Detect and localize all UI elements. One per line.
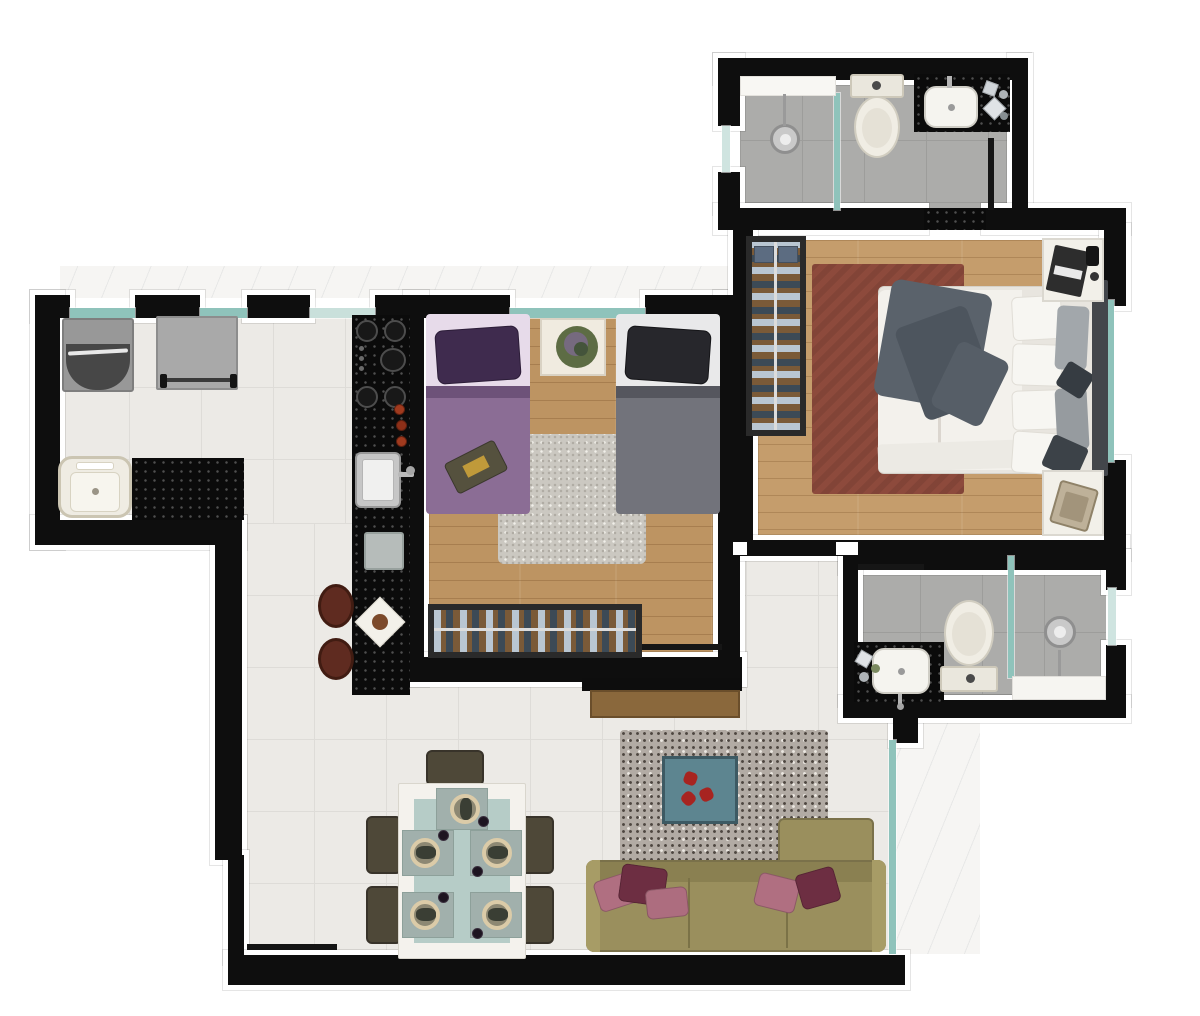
- wine-glass: [438, 830, 449, 841]
- bath-accessory: [999, 90, 1008, 99]
- plate-food: [488, 846, 508, 859]
- sink-drain: [948, 104, 955, 111]
- door-leaf-entry: [247, 944, 337, 950]
- wardrobe-box: [754, 246, 774, 263]
- wall-laundry-bottom: [35, 520, 242, 545]
- bed-headboard: [1092, 280, 1108, 476]
- door-threshold-bath1: [924, 208, 986, 230]
- spice-bottle: [394, 404, 405, 415]
- wall-living-left-upper: [215, 520, 242, 860]
- door-leaf-bath1: [988, 138, 994, 210]
- wall-bath2-bottom: [843, 700, 1126, 718]
- apartment-floor-plan: [0, 0, 1200, 1016]
- wall-bath1-left-upper: [718, 58, 740, 126]
- stove-burner: [384, 320, 406, 342]
- bar-stool: [318, 638, 354, 680]
- window-glass-laundry: [70, 308, 135, 318]
- balcony-floor: [896, 716, 980, 954]
- single-bed-purple-fold: [426, 386, 530, 398]
- dining-chair: [366, 886, 402, 944]
- wall-living-left-lower: [228, 855, 244, 960]
- nightstand-plant-core: [574, 342, 588, 356]
- shower-glass-bath1: [834, 93, 840, 210]
- spice-bottle: [396, 436, 407, 447]
- laundry-sink-drain: [92, 488, 99, 495]
- wine-glass: [472, 928, 483, 939]
- wall-bath1-right: [1012, 58, 1028, 210]
- wardrobe-box: [778, 246, 798, 263]
- kitchen-sink-basin: [362, 459, 394, 501]
- sink-faucet-knob: [897, 703, 904, 710]
- nightstand-clock: [1090, 272, 1099, 281]
- shower-drain-center: [780, 134, 791, 145]
- sofa-armrest-right: [872, 860, 886, 952]
- master-wardrobe-rail: [774, 242, 777, 430]
- tv-console: [590, 690, 740, 718]
- wall-bedroom2-left: [408, 295, 424, 682]
- nightstand-phone: [1086, 246, 1099, 266]
- wall-bottom: [228, 955, 905, 985]
- shower-glass-bath2: [1008, 556, 1014, 678]
- laundry-sink-slot: [76, 462, 114, 470]
- toilet-button: [872, 81, 881, 90]
- single-bed-gray-fold: [616, 386, 720, 398]
- kitchen-faucet-base: [406, 466, 415, 475]
- bath-accessory: [1000, 112, 1008, 120]
- dining-chair: [366, 816, 402, 874]
- laundry-counter: [132, 458, 244, 520]
- wall-top-2: [135, 295, 200, 318]
- wine-glass: [438, 892, 449, 903]
- single-bed-purple-pillow: [434, 325, 522, 385]
- bath1-shelf: [740, 76, 836, 96]
- double-bed-foot-fold: [878, 439, 1023, 472]
- sofa-chaise-back: [778, 818, 874, 866]
- stove-burner: [356, 386, 378, 408]
- plate-food: [416, 846, 436, 859]
- wall-top-3: [247, 295, 310, 318]
- stove-burner: [380, 348, 406, 372]
- door-leaf-bath2: [858, 564, 924, 570]
- window-glass-bath1: [722, 126, 730, 172]
- ironing-board-foot-left: [160, 374, 167, 388]
- door-jamb-master-right: [836, 542, 858, 555]
- counter-decor-flower: [372, 614, 388, 630]
- stove-burner: [356, 320, 378, 342]
- door-leaf-bedroom2: [640, 644, 722, 650]
- wine-glass: [478, 816, 489, 827]
- shower-drain-center: [1054, 626, 1066, 638]
- toilet-button: [966, 674, 975, 683]
- wall-bath2-right-lower: [1106, 645, 1126, 702]
- bedroom2-wardrobe-rail: [434, 628, 636, 631]
- stove-knob: [359, 356, 364, 361]
- sink-faucet: [947, 76, 952, 88]
- stove-knob: [359, 366, 364, 371]
- spice-bottle: [396, 420, 407, 431]
- toilet-seat: [952, 612, 986, 656]
- sofa-cushion: [645, 886, 690, 920]
- wall-bath1-left-lower: [718, 172, 740, 210]
- toilet-seat: [862, 108, 892, 148]
- ironing-board-foot-right: [230, 374, 237, 388]
- window-glass-bath2: [1108, 588, 1116, 645]
- window-glass-living: [889, 740, 896, 954]
- wall-bath2-right-upper: [1106, 554, 1126, 590]
- sofa-armrest-left: [586, 860, 600, 952]
- stove-knob: [359, 346, 364, 351]
- bath2-bench: [1012, 676, 1106, 700]
- plate-food: [460, 798, 472, 820]
- cutting-board: [364, 532, 404, 570]
- bar-stool: [318, 584, 354, 628]
- bath-accessory: [859, 672, 869, 682]
- bath-accessory: [871, 664, 880, 673]
- bedroom2-wardrobe-clothes: [434, 610, 636, 652]
- door-jamb-master-left: [733, 542, 747, 555]
- dining-chair: [426, 750, 484, 786]
- shower-hose: [783, 94, 786, 126]
- wall-laundry-left: [35, 295, 60, 545]
- single-bed-gray-duvet: [616, 386, 720, 514]
- wall-bath1-bottom-left: [718, 208, 924, 230]
- plate-food: [416, 908, 436, 921]
- sink-drain: [898, 668, 905, 675]
- wall-bath1-bottom-right: [986, 208, 1126, 230]
- wine-glass: [472, 866, 483, 877]
- single-bed-gray-pillow: [624, 325, 712, 385]
- plate-food: [488, 908, 508, 921]
- ironing-board-bar: [162, 378, 234, 382]
